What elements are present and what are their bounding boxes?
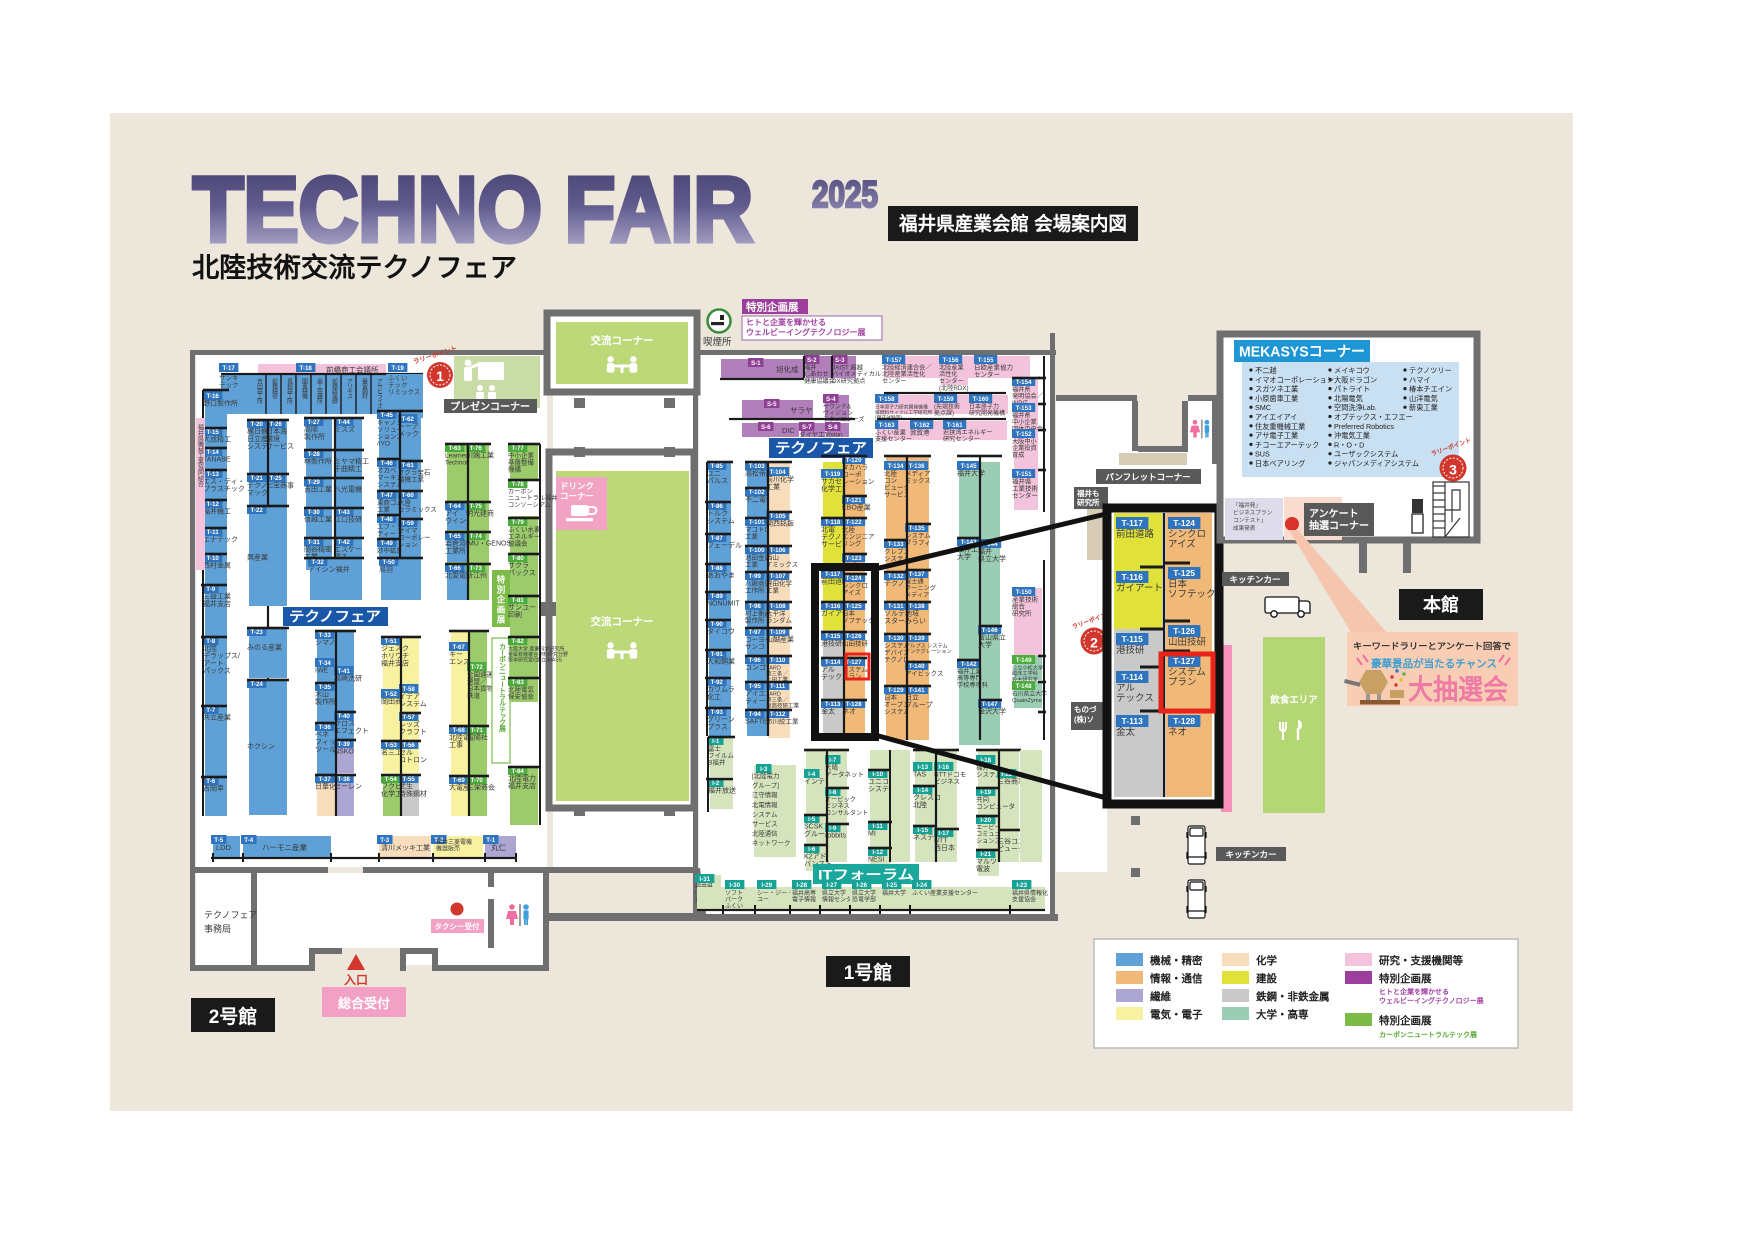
svg-text:特別企画展: 特別企画展 [1379, 972, 1432, 985]
svg-text:T-26: T-26 [269, 421, 282, 428]
svg-text:T-104: T-104 [770, 469, 786, 476]
svg-text:特殊鋼材: 特殊鋼材 [399, 789, 427, 798]
svg-text:T-11: T-11 [207, 529, 220, 536]
svg-text:センター: センター [1012, 491, 1038, 500]
svg-text:T-118: T-118 [825, 519, 841, 526]
svg-text:システム: システム [905, 531, 931, 539]
svg-text:関西銘鈑: 関西銘鈑 [766, 518, 794, 527]
svg-text:サンユー: サンユー [508, 603, 536, 611]
svg-text:キッチンカー: キッチンカー [1225, 850, 1276, 860]
svg-text:シマノ: シマノ [315, 638, 336, 646]
svg-text:公立小松大学: 公立小松大学 [1012, 663, 1043, 671]
svg-text:Vision: Vision [825, 431, 843, 438]
svg-text:T-155: T-155 [978, 357, 994, 364]
svg-text:県立大学: 県立大学 [822, 889, 846, 897]
svg-text:T-98: T-98 [748, 603, 761, 610]
svg-text:T-60: T-60 [401, 492, 414, 499]
svg-text:アイズ: アイズ [1168, 538, 1196, 550]
svg-text:T-103: T-103 [749, 463, 765, 470]
svg-text:SMC: SMC [1255, 403, 1271, 412]
svg-text:三益工業: 三益工業 [203, 591, 231, 600]
svg-text:パックス: パックス [203, 667, 231, 675]
svg-text:沖電気工業: 沖電気工業 [1334, 431, 1370, 440]
svg-text:LDD: LDD [216, 843, 232, 852]
svg-text:喫煙所: 喫煙所 [703, 336, 732, 348]
svg-text:T-37: T-37 [318, 776, 331, 783]
svg-text:若狭湾エネルギー: 若狭湾エネルギー [943, 428, 993, 436]
svg-text:メディア: メディア [905, 591, 929, 599]
svg-text:精機工業: 精機工業 [398, 475, 425, 484]
svg-text:港技研: 港技研 [1116, 644, 1145, 656]
svg-text:リミックス: リミックス [388, 388, 420, 396]
svg-text:セラミックス: セラミックス [398, 506, 437, 514]
svg-text:番留鋼材: 番留鋼材 [361, 378, 368, 399]
svg-text:福井放送: 福井放送 [708, 785, 736, 794]
svg-text:T-136: T-136 [909, 463, 925, 470]
svg-text:北陸電気: 北陸電気 [508, 684, 535, 693]
svg-text:製作所: 製作所 [315, 697, 336, 706]
svg-text:山田技研: 山田技研 [1168, 636, 1207, 648]
svg-text:ビジネスプラン: ビジネスプラン [1233, 509, 1273, 517]
svg-text:繊維: 繊維 [1149, 990, 1172, 1003]
svg-text:「福井発」: 「福井発」 [1233, 501, 1261, 509]
svg-text:ジェスク: ジェスク [381, 644, 409, 652]
svg-text:T-158: T-158 [879, 396, 895, 403]
svg-text:支援協会: 支援協会 [1012, 896, 1036, 904]
svg-text:アサ電子工業: アサ電子工業 [1255, 431, 1298, 440]
svg-text:T-56: T-56 [402, 742, 415, 749]
svg-text:プラス: プラス [707, 723, 728, 731]
svg-text:T-139: T-139 [909, 635, 925, 642]
svg-text:JAIST 超越: JAIST 超越 [832, 363, 863, 371]
svg-text:テクノフェア: テクノフェア [775, 440, 867, 456]
svg-text:吉田工業: 吉田工業 [304, 484, 332, 493]
svg-text:エンス: エンス [449, 658, 470, 666]
svg-text:野口製作所: 野口製作所 [203, 398, 238, 407]
svg-text:工業技術: 工業技術 [1012, 484, 1039, 493]
svg-text:ウェルビーイングテクノロジー展: ウェルビーイングテクノロジー展 [1379, 996, 1485, 1005]
svg-text:タクシー受付: タクシー受付 [435, 921, 480, 931]
svg-text:核燃料サイクル工学研究所: 核燃料サイクル工学研究所 [875, 409, 933, 416]
svg-text:テックス: テックス [1116, 693, 1154, 704]
svg-text:カワムラ: カワムラ [707, 685, 735, 693]
svg-text:I-17: I-17 [938, 830, 949, 837]
svg-text:I-24: I-24 [916, 882, 927, 889]
svg-text:福井県: 福井県 [1012, 411, 1031, 419]
svg-text:特別企画展: 特別企画展 [1379, 1014, 1432, 1027]
svg-text:T-131: T-131 [888, 603, 904, 610]
svg-text:ベネ: ベネ [315, 730, 329, 738]
svg-text:スター: スター [884, 616, 905, 625]
svg-text:オグラ宝石: オグラ宝石 [398, 467, 431, 476]
svg-text:高陽: 高陽 [304, 424, 318, 433]
svg-text:T-40: T-40 [337, 713, 350, 720]
svg-text:ホクシン: ホクシン [247, 742, 275, 750]
svg-text:T-149: T-149 [1016, 657, 1032, 664]
svg-text:ティー: ティー [745, 697, 766, 705]
svg-text:T-116: T-116 [825, 603, 841, 610]
svg-text:三栄商会: 三栄商会 [467, 782, 495, 791]
svg-text:ジャパンメディアシステム: ジャパンメディアシステム [1334, 459, 1419, 468]
svg-text:電波: 電波 [976, 864, 990, 873]
svg-text:ヒトと企業を輝かせる: ヒトと企業を輝かせる [1379, 987, 1449, 996]
svg-text:S-6: S-6 [761, 424, 771, 431]
svg-text:ウェルビーイングテクノロジー展: ウェルビーイングテクノロジー展 [746, 327, 866, 337]
svg-text:T-12: T-12 [206, 501, 219, 508]
svg-text:キー: キー [449, 651, 463, 658]
svg-text:T-102: T-102 [749, 489, 765, 496]
svg-text:T-38: T-38 [337, 776, 350, 783]
svg-text:日欧産業協力: 日欧産業協力 [974, 362, 1013, 371]
svg-text:新江州: 新江州 [466, 570, 487, 579]
svg-text:T-109: T-109 [770, 629, 786, 636]
svg-text:坂本研究室/(設立)MASS: 坂本研究室/(設立)MASS [508, 657, 563, 664]
svg-text:[北陸電力: [北陸電力 [752, 771, 779, 780]
svg-text:パンフレットコーナー: パンフレットコーナー [1105, 472, 1190, 482]
svg-text:ネットワーク: ネットワーク [752, 839, 790, 847]
svg-text:T-112: T-112 [770, 711, 786, 718]
svg-text:T-43: T-43 [337, 509, 350, 516]
svg-text:T-101: T-101 [749, 519, 765, 526]
svg-text:T-76: T-76 [469, 445, 482, 452]
svg-text:恐竜学部: 恐竜学部 [852, 896, 876, 904]
svg-text:スガツネ工業: スガツネ工業 [1255, 385, 1298, 394]
svg-text:テクノフェア: テクノフェア [289, 609, 381, 625]
svg-text:T-124: T-124 [1173, 518, 1195, 528]
svg-text:北電情報: 北電情報 [752, 800, 778, 809]
svg-text:チコーエアーテック: チコーエアーテック [1255, 440, 1319, 449]
svg-text:T-91: T-91 [710, 651, 723, 658]
svg-text:福井支店: 福井支店 [508, 781, 536, 790]
svg-text:T-3: T-3 [380, 837, 389, 844]
svg-text:千曲精工: 千曲精工 [334, 464, 362, 473]
svg-text:T-154: T-154 [1016, 379, 1032, 386]
svg-text:DX研究拠点: DX研究拠点 [832, 377, 865, 385]
svg-text:T-82: T-82 [511, 638, 524, 645]
svg-text:住友重機械工業: 住友重機械工業 [1255, 422, 1305, 431]
svg-text:エネルギー: エネルギー [508, 533, 541, 541]
svg-text:日本貨物: 日本貨物 [467, 684, 494, 693]
svg-text:T-141: T-141 [909, 687, 925, 694]
svg-text:特別企画展: 特別企画展 [496, 574, 506, 625]
svg-text:T-89: T-89 [710, 593, 723, 600]
svg-text:工業: 工業 [377, 505, 391, 514]
svg-text:アート: アート [203, 660, 224, 668]
svg-text:高等専門: 高等専門 [957, 674, 982, 682]
svg-text:T-115: T-115 [825, 633, 841, 640]
svg-text:T-54: T-54 [384, 776, 397, 783]
svg-text:T-90: T-90 [710, 621, 723, 628]
svg-text:T-105: T-105 [770, 513, 786, 520]
svg-text:コーナー: コーナー [560, 491, 594, 501]
svg-text:データネット: データネット [825, 770, 864, 779]
svg-text:鉄鋼・非鉄金属: 鉄鋼・非鉄金属 [1256, 990, 1330, 1003]
svg-text:木山: 木山 [315, 689, 329, 698]
svg-text:あおやま: あおやま [707, 571, 735, 579]
svg-text:T-13: T-13 [206, 471, 219, 478]
svg-text:T-53: T-53 [384, 742, 397, 749]
svg-text:S-4: S-4 [826, 396, 836, 403]
svg-text:I-10: I-10 [872, 771, 883, 778]
svg-text:I-6: I-6 [808, 846, 816, 853]
svg-text:/IYO: /IYO [377, 441, 390, 448]
svg-text:トーア: トーア [398, 422, 419, 430]
svg-text:アイシン福井: アイシン福井 [308, 564, 350, 573]
svg-text:コンテスト」: コンテスト」 [1233, 517, 1267, 524]
svg-text:I-9: I-9 [829, 825, 837, 832]
svg-text:工事: 工事 [449, 740, 463, 749]
svg-text:エスケー: エスケー [334, 545, 362, 553]
svg-text:本館: 本館 [1423, 594, 1459, 615]
svg-text:T-119: T-119 [825, 471, 841, 478]
svg-text:イデア: イデア [399, 691, 420, 700]
svg-text:オプテックス・エフエー: オプテックス・エフエー [1334, 413, 1413, 422]
svg-text:福井: 福井 [804, 363, 816, 371]
svg-text:小原歯車工業: 小原歯車工業 [1255, 394, 1298, 403]
svg-text:北陸産業: 北陸産業 [939, 363, 964, 371]
svg-text:西日本: 西日本 [934, 843, 955, 852]
svg-text:県立大学: 県立大学 [978, 554, 1006, 563]
svg-text:I-7: I-7 [829, 757, 837, 764]
svg-text:北陸技術交流テクノフェア: 北陸技術交流テクノフェア [192, 252, 517, 283]
svg-text:中小企業: 中小企業 [1012, 418, 1037, 426]
svg-text:ユニコ: ユニコ [868, 777, 889, 785]
svg-text:福井も: 福井も [1076, 488, 1100, 498]
svg-text:メック: メック [398, 430, 419, 438]
svg-text:ハーモニ産業: ハーモニ産業 [262, 842, 307, 852]
svg-text:情報センタ: 情報センタ [822, 896, 852, 904]
svg-text:交流コーナー: 交流コーナー [591, 615, 654, 628]
svg-text:メディア: メディア [905, 468, 931, 477]
svg-text:プラスチック: プラスチック [203, 485, 245, 493]
svg-text:T-113: T-113 [1122, 716, 1144, 726]
svg-text:化学: 化学 [1256, 954, 1278, 967]
svg-text:2025: 2025 [812, 174, 878, 215]
svg-text:ツール: ツール [315, 747, 336, 754]
svg-text:製作所: 製作所 [745, 616, 765, 625]
svg-text:パーク: パーク [725, 897, 743, 904]
svg-text:I-15: I-15 [917, 827, 928, 834]
svg-text:大阪中小: 大阪中小 [1012, 437, 1038, 445]
svg-text:I-3: I-3 [760, 766, 768, 773]
svg-text:ソフテック: ソフテック [1168, 589, 1216, 600]
svg-text:T-63: T-63 [448, 445, 461, 452]
svg-text:鳥羽: 鳥羽 [379, 564, 393, 573]
svg-text:アリギス: アリギス [346, 378, 353, 399]
svg-text:アイビックス: アイビックス [905, 668, 943, 677]
svg-text:ミックス: ミックス [905, 477, 931, 485]
svg-text:2号館: 2号館 [209, 1005, 258, 1028]
svg-text:情報・通信: 情報・通信 [1150, 972, 1203, 985]
svg-text:福井支店: 福井支店 [381, 659, 409, 668]
svg-text:みらい: みらい [905, 617, 926, 625]
svg-text:T-163: T-163 [879, 422, 895, 429]
svg-text:レーション: レーション [842, 479, 874, 486]
svg-text:T-83: T-83 [511, 679, 524, 686]
svg-text:T-113: T-113 [825, 701, 841, 708]
svg-text:製作所: 製作所 [304, 432, 325, 441]
svg-text:SCSK: SCSK [804, 823, 823, 830]
svg-text:T-124: T-124 [846, 575, 862, 582]
svg-text:T-125: T-125 [846, 603, 862, 610]
svg-text:北電: 北電 [821, 525, 835, 533]
svg-text:I-2: I-2 [712, 780, 720, 787]
svg-text:T-93: T-93 [710, 709, 723, 716]
svg-text:アイ: アイ [445, 509, 459, 517]
svg-text:エンジニア: エンジニア [842, 533, 875, 541]
svg-text:T-87: T-87 [710, 535, 723, 542]
svg-text:コン: コン [884, 477, 897, 485]
svg-text:T-45: T-45 [380, 412, 393, 419]
svg-text:機器販売: 機器販売 [436, 845, 460, 853]
svg-text:マルツ: マルツ [976, 857, 997, 865]
svg-text:T-23: T-23 [250, 629, 263, 636]
svg-text:T-145: T-145 [961, 463, 977, 470]
svg-text:ふくい産業: ふくい産業 [875, 428, 906, 436]
svg-text:県立大学: 県立大学 [852, 889, 876, 897]
svg-text:福井県情報化: 福井県情報化 [1012, 889, 1048, 897]
svg-text:前橋精密: 前橋精密 [271, 377, 278, 400]
svg-text:信越工業: 信越工業 [304, 514, 332, 523]
svg-text:T-79: T-79 [511, 519, 524, 526]
svg-text:ユニ: ユニ [707, 470, 721, 477]
svg-text:T-70: T-70 [470, 777, 483, 784]
svg-text:I-1: I-1 [712, 738, 720, 745]
svg-text:北陽電気: 北陽電気 [1334, 394, 1363, 403]
svg-text:北陸産業活性化: 北陸産業活性化 [882, 370, 925, 378]
svg-text:T-74: T-74 [469, 533, 482, 540]
svg-text:シー・ジー・: シー・ジー・ [757, 891, 793, 897]
svg-text:福井支店: 福井支店 [203, 599, 231, 608]
svg-text:SUS: SUS [1255, 450, 1270, 459]
svg-text:アサヒライズ: アサヒライズ [376, 378, 383, 409]
svg-text:金太: 金太 [1116, 726, 1136, 738]
svg-text:T-68: T-68 [452, 727, 465, 734]
svg-text:サービス: サービス [752, 819, 778, 828]
svg-text:シンクロ: シンクロ [842, 581, 868, 589]
svg-text:T-69: T-69 [452, 777, 465, 784]
svg-text:T-32: T-32 [311, 559, 324, 566]
svg-text:S-7: S-7 [802, 424, 812, 431]
svg-text:T-107: T-107 [770, 573, 786, 580]
svg-text:T-34: T-34 [318, 660, 331, 667]
svg-text:ものづ: ものづ [1074, 704, 1097, 714]
svg-text:フイルム: フイルム [708, 752, 734, 760]
svg-text:T-95: T-95 [748, 683, 761, 690]
svg-text:ミヤマ精工: ミヤマ精工 [334, 456, 369, 465]
svg-text:T-156: T-156 [943, 357, 959, 364]
svg-text:ガイアート: ガイアート [1116, 583, 1163, 594]
svg-text:T-126: T-126 [1173, 626, 1195, 636]
svg-text:市川紋工業: 市川紋工業 [766, 716, 799, 725]
svg-text:T-120: T-120 [846, 457, 862, 464]
svg-text:サクラ: サクラ [508, 561, 529, 569]
svg-text:1: 1 [436, 368, 444, 384]
svg-text:R・O・D: R・O・D [1334, 440, 1364, 449]
svg-text:商工会議所: 商工会議所 [316, 377, 323, 405]
svg-text:コトロン: コトロン [399, 756, 427, 764]
svg-text:育成: 育成 [1012, 451, 1024, 459]
svg-text:セーレン: セーレン [334, 782, 362, 790]
svg-text:S-1: S-1 [751, 360, 761, 367]
svg-text:機構: 機構 [508, 465, 522, 474]
svg-text:T-64: T-64 [448, 503, 461, 510]
svg-text:T-94: T-94 [748, 711, 761, 718]
svg-text:ケミックス: ケミックス [766, 561, 798, 569]
svg-text:T-160: T-160 [973, 396, 989, 403]
svg-text:オカベ: オカベ [377, 466, 397, 474]
svg-text:工業: 工業 [745, 532, 759, 541]
svg-text:燕三条／: 燕三条／ [766, 670, 789, 678]
svg-text:T-22: T-22 [250, 507, 263, 514]
svg-text:福井工業: 福井工業 [957, 667, 982, 675]
svg-text:T-142: T-142 [961, 661, 977, 668]
svg-text:T-110: T-110 [770, 657, 786, 664]
svg-text:I-23: I-23 [1016, 882, 1027, 889]
svg-text:ヴィジョン: ヴィジョン [823, 409, 853, 417]
svg-text:北陸: 北陸 [884, 468, 898, 477]
svg-text:産業技術: 産業技術 [1012, 594, 1039, 603]
svg-text:建設: 建設 [1255, 972, 1278, 985]
svg-text:江口技研: 江口技研 [334, 514, 362, 523]
svg-text:成果発表: 成果発表 [1233, 524, 1256, 532]
svg-text:クラフト: クラフト [399, 728, 427, 736]
svg-text:燕三条／: 燕三条／ [766, 696, 789, 704]
svg-text:T-9: T-9 [206, 586, 215, 593]
svg-text:T-29: T-29 [307, 479, 320, 486]
svg-text:北陸電力: 北陸電力 [508, 773, 536, 782]
svg-text:アイエイアイ: アイエイアイ [1255, 413, 1297, 422]
svg-text:T-42: T-42 [337, 539, 350, 546]
svg-text:I-30: I-30 [729, 882, 740, 889]
svg-text:吉岡幸: 吉岡幸 [203, 784, 224, 792]
svg-text:T-127: T-127 [1173, 656, 1195, 666]
svg-text:メイキコウ: メイキコウ [1334, 366, 1370, 375]
svg-text:S-5: S-5 [767, 401, 777, 408]
svg-text:林製作所: 林製作所 [304, 456, 332, 465]
svg-text:金沢大学: 金沢大学 [978, 706, 1006, 715]
svg-text:T-129: T-129 [888, 687, 904, 694]
svg-text:カーボンニュートラルテック展: カーボンニュートラルテック展 [1379, 1030, 1478, 1039]
svg-text:B福井: B福井 [708, 758, 726, 767]
svg-text:T-147: T-147 [982, 701, 998, 708]
svg-text:T-99: T-99 [748, 573, 761, 580]
svg-text:robbits: robbits [825, 832, 847, 839]
svg-text:敦賀港: 敦賀港 [910, 427, 930, 436]
svg-text:福井県: 福井県 [1012, 476, 1032, 485]
svg-text:総合: 総合 [1012, 602, 1026, 611]
svg-text:QuainZyme: QuainZyme [1012, 698, 1042, 704]
svg-text:NTTドコモ: NTTドコモ [934, 770, 966, 778]
svg-text:真柄鉄工所: 真柄鉄工所 [286, 377, 293, 405]
svg-text:T-128: T-128 [846, 701, 862, 708]
svg-text:I-21: I-21 [980, 851, 991, 858]
svg-text:T-65: T-65 [448, 533, 461, 540]
svg-text:港技研: 港技研 [821, 638, 842, 647]
svg-text:特別企画展: 特別企画展 [746, 301, 799, 314]
svg-text:T-28: T-28 [307, 451, 320, 458]
svg-text:グループ]: グループ] [752, 781, 779, 790]
svg-text:ニュートラル福井: ニュートラル福井 [508, 494, 558, 502]
svg-text:I-29: I-29 [761, 882, 772, 889]
svg-text:T-92: T-92 [710, 679, 723, 686]
svg-text:新東工業: 新東工業 [1409, 403, 1438, 412]
svg-text:空間洗浄Lab.: 空間洗浄Lab. [1334, 403, 1377, 412]
svg-text:T-84: T-84 [511, 768, 524, 775]
svg-text:NONUMIT: NONUMIT [707, 600, 740, 607]
svg-text:IMU・GENOS: IMU・GENOS [466, 540, 511, 547]
svg-text:T-162: T-162 [914, 422, 930, 429]
